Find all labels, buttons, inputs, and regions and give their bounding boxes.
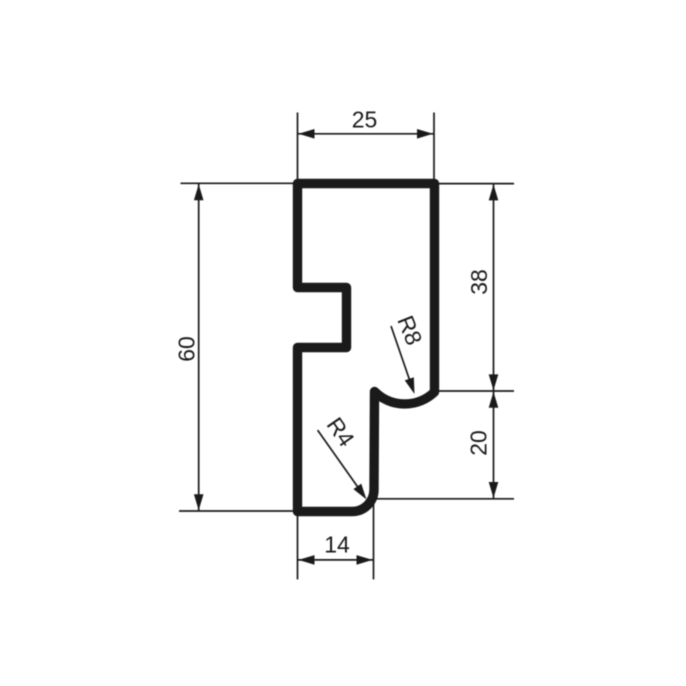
svg-text:60: 60: [174, 336, 200, 362]
svg-text:14: 14: [324, 532, 350, 558]
svg-text:20: 20: [466, 430, 492, 456]
svg-text:25: 25: [352, 107, 378, 133]
svg-text:R4: R4: [322, 412, 360, 451]
svg-text:38: 38: [466, 269, 492, 295]
